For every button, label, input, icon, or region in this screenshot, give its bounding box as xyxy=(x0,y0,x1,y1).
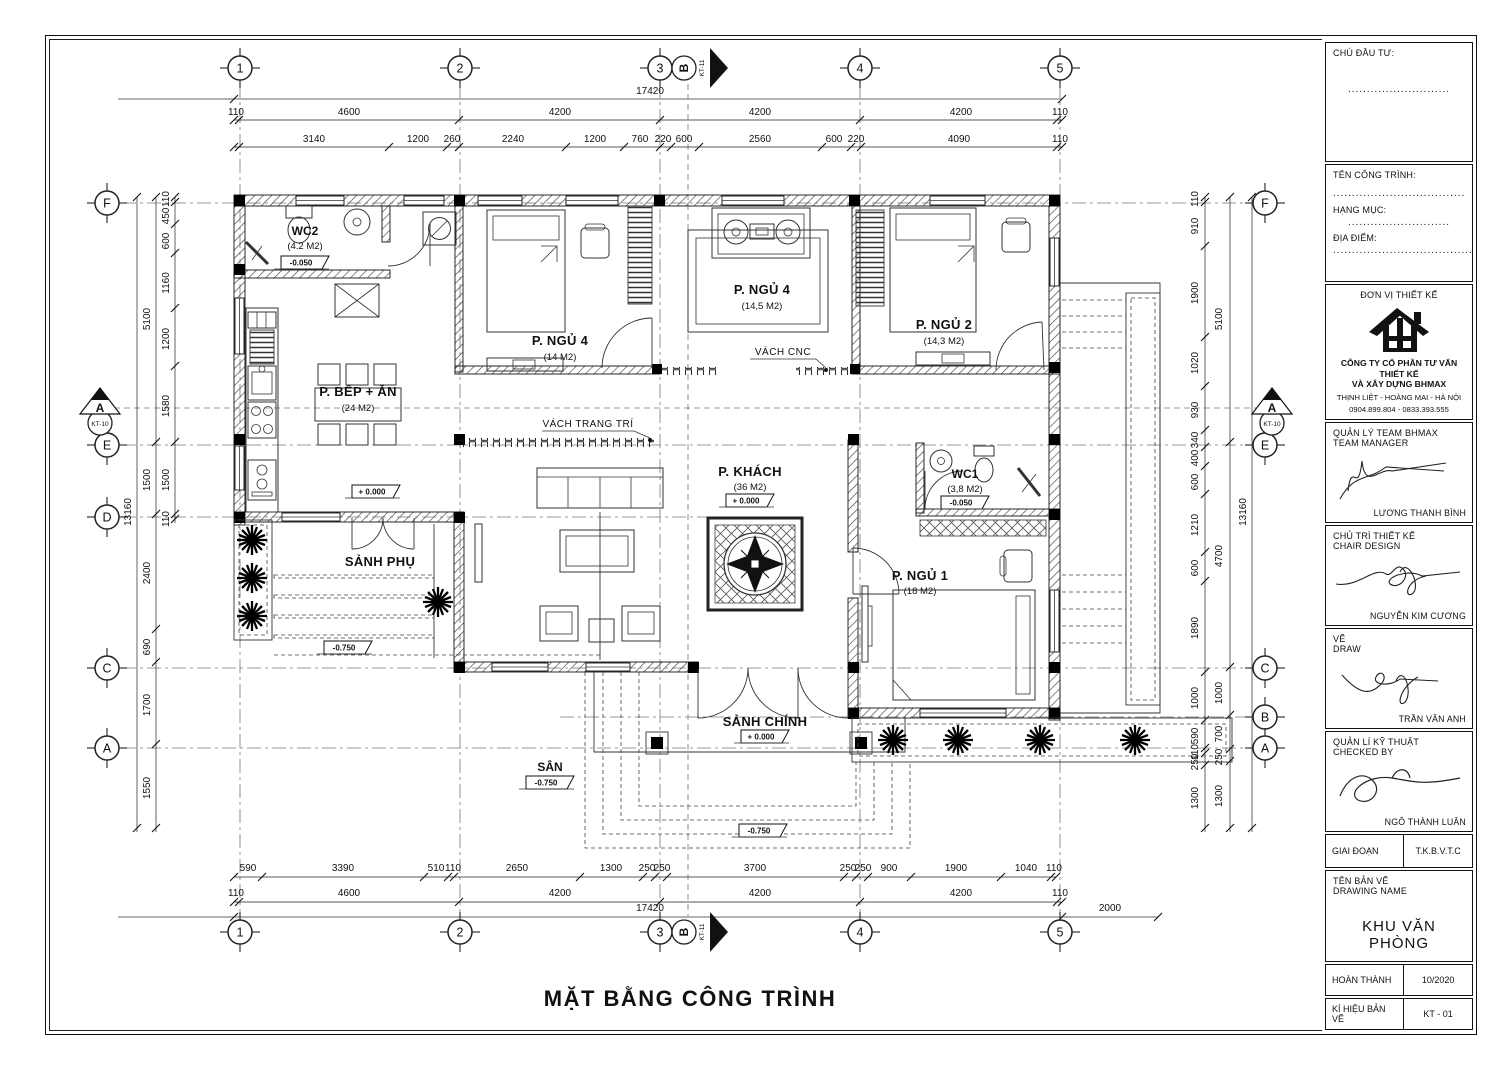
dim-text: 1300 xyxy=(600,863,623,874)
drawing-sheet: 17420 110 4600 4200 4200 4200 110 3140 1… xyxy=(0,0,1499,1071)
dim-text: 1040 xyxy=(1015,863,1038,874)
dim-text: 600 xyxy=(1190,473,1201,490)
stage-value: T.K.B.V.T.C xyxy=(1404,835,1472,867)
level-value: -0.050 xyxy=(950,499,973,508)
annotation-trang-tri: VÁCH TRANG TRÍ xyxy=(542,417,633,430)
level-value: -0.750 xyxy=(535,779,558,788)
dimension-lines xyxy=(118,95,1256,921)
role-box-manager: QUẢN LÝ TEAM BHMAX TEAM MANAGER LƯƠNG TH… xyxy=(1325,422,1473,523)
dim-text: 700 xyxy=(1214,725,1225,742)
room-area: (18 M2) xyxy=(904,586,937,597)
designer-box: ĐƠN VỊ THIẾT KẾ CÔNG TY CỔ PHẦN TƯ VẤN T… xyxy=(1325,284,1473,420)
dim-text: 4200 xyxy=(749,888,772,899)
company-address: THỊNH LIỆT - HOÀNG MAI - HÀ NỘI xyxy=(1333,393,1465,402)
grid-col-label: 2 xyxy=(457,62,464,76)
sheet-code-value: KT - 01 xyxy=(1404,999,1472,1029)
dim-text: 1020 xyxy=(1190,351,1201,374)
room-area: (24 M2) xyxy=(342,403,375,414)
dim-text: 110 xyxy=(1052,134,1068,145)
role-name: LƯƠNG THANH BÌNH xyxy=(1374,508,1466,518)
grid-col-label: 5 xyxy=(1057,926,1064,940)
signature xyxy=(1334,653,1454,709)
room-area: (14,3 M2) xyxy=(924,336,965,347)
dim-text: 13160 xyxy=(123,498,134,526)
dim-text: 4200 xyxy=(549,107,572,118)
room-name: P. NGỦ 2 xyxy=(916,317,972,332)
dim-text: 1300 xyxy=(1190,786,1201,809)
dim-text: 5100 xyxy=(142,307,153,330)
room-area: (4.2 M2) xyxy=(287,241,322,252)
drawing-name-box: TÊN BẢN VẼ DRAWING NAME KHU VĂN PHÒNG xyxy=(1325,870,1473,962)
dimension-texts: 17420 110 4600 4200 4200 4200 110 3140 1… xyxy=(123,86,1249,914)
signature xyxy=(1334,447,1454,503)
dim-text: 590 xyxy=(240,863,257,874)
completed-label: HOÀN THÀNH xyxy=(1326,965,1404,995)
dim-text: 910 xyxy=(1190,217,1201,234)
location-label: ĐỊA ĐIỂM: xyxy=(1333,233,1465,243)
section-sheet: KT-10 xyxy=(91,421,109,428)
role-label-vi: QUẢN LÍ KỸ THUẬT xyxy=(1333,737,1465,747)
grid-row-label: C xyxy=(102,662,111,676)
level-value: -0.750 xyxy=(333,644,356,653)
grid-col-label: 4 xyxy=(857,926,864,940)
porch-right-band xyxy=(852,718,1232,762)
dim-text: 590 xyxy=(1190,727,1201,744)
dim-text: 450 xyxy=(161,207,172,224)
grid-row-label: A xyxy=(1261,742,1270,756)
stage-box: GIAI ĐOẠN T.K.B.V.T.C xyxy=(1325,834,1473,868)
level-flags: -0.050 + 0.000 + 0.000 -0.050 -0.750 + 0… xyxy=(274,256,989,837)
design-unit-label: ĐƠN VỊ THIẾT KẾ xyxy=(1333,290,1465,300)
section-sheet: KT-11 xyxy=(699,59,706,76)
floor-plan: 17420 110 4600 4200 4200 4200 110 3140 1… xyxy=(0,0,1322,1071)
drawing-name-label-en: DRAWING NAME xyxy=(1333,886,1465,896)
dim-text: 250 xyxy=(855,863,872,874)
owner-box: CHÚ ĐẦU TƯ: ........................... xyxy=(1325,42,1473,162)
room-name: WC1 xyxy=(952,467,979,481)
dim-text: 600 xyxy=(161,232,172,249)
dim-text: 1200 xyxy=(161,327,172,350)
partition-cnc xyxy=(796,367,852,375)
company-phone: 0904.899.804 - 0833.393.555 xyxy=(1333,405,1465,414)
annotation-cnc: VÁCH CNC xyxy=(755,345,811,358)
annotations: VÁCH CNC VÁCH TRANG TRÍ xyxy=(542,345,828,442)
room-name: P. NGỦ 4 xyxy=(532,333,589,348)
dim-text: 220 xyxy=(655,134,672,145)
dim-text: 1500 xyxy=(161,468,172,491)
dim-text: 900 xyxy=(881,863,898,874)
dim-text: 600 xyxy=(1190,559,1201,576)
level-value: -0.050 xyxy=(290,259,313,268)
level-value: -0.750 xyxy=(748,827,771,836)
dim-text: 1500 xyxy=(142,468,153,491)
room-name: WC2 xyxy=(292,224,319,238)
dim-text: 1000 xyxy=(1214,681,1225,704)
dim-text: 1580 xyxy=(161,394,172,417)
company-name-line2: VÀ XÂY DỰNG BHMAX xyxy=(1333,379,1465,390)
partition-trang-tri xyxy=(458,438,654,447)
signature xyxy=(1334,550,1464,602)
dim-text: 110 xyxy=(161,191,172,207)
room-name: P. NGỦ 4 xyxy=(734,282,791,297)
role-box-draw: VẼ DRAW TRẦN VĂN ANH xyxy=(1325,628,1473,729)
section-marker-kt10-right: A KT-10 xyxy=(1252,388,1292,435)
grid-row-label: E xyxy=(103,439,111,453)
stage-label: GIAI ĐOẠN xyxy=(1326,835,1404,867)
title-block: CHÚ ĐẦU TƯ: ........................... … xyxy=(1322,39,1476,1031)
section-marker-kt11-bottom: B KT-11 xyxy=(672,912,728,952)
section-sheet: KT-11 xyxy=(699,923,706,940)
dim-text: 110 xyxy=(1190,191,1201,207)
role-label-vi: QUẢN LÝ TEAM BHMAX xyxy=(1333,428,1465,438)
section-marker-kt10-left: A KT-10 xyxy=(80,388,120,435)
dim-text: 110 xyxy=(1052,888,1068,899)
room-area: (36 M2) xyxy=(734,482,767,493)
dim-text: 400 xyxy=(1190,449,1201,466)
level-value: + 0.000 xyxy=(748,733,775,742)
dim-text: 1550 xyxy=(142,776,153,799)
dim-text: 1160 xyxy=(161,272,172,294)
project-name-label: TÊN CÔNG TRÌNH: xyxy=(1333,170,1465,180)
dim-text: 4200 xyxy=(549,888,572,899)
category-label: HẠNG MỤC: xyxy=(1333,205,1465,215)
section-sheet: KT-10 xyxy=(1263,421,1281,428)
dim-text: 3700 xyxy=(744,863,767,874)
room-name: SẢNH CHÍNH xyxy=(723,714,808,729)
project-name-dots: ................................... xyxy=(1333,188,1465,199)
room-labels: WC2 (4.2 M2) P. NGỦ 4 (14 M2) P. NGỦ 4 (… xyxy=(287,224,982,774)
porch-sanh-phu xyxy=(234,512,600,660)
dim-text: 2000 xyxy=(1099,903,1122,914)
dim-text: 4600 xyxy=(338,888,361,899)
drawing-name-label-vi: TÊN BẢN VẼ xyxy=(1333,876,1465,886)
room-name: P. BẾP + ĂN xyxy=(319,384,397,399)
dim-text: 4200 xyxy=(950,107,973,118)
room-area: (14,5 M2) xyxy=(742,301,783,312)
dim-text: 2650 xyxy=(506,863,529,874)
level-value: + 0.000 xyxy=(733,497,760,506)
grid-col-label: 1 xyxy=(237,62,244,76)
section-letter: B xyxy=(677,63,691,72)
door-leaf xyxy=(475,524,482,582)
section-letter: A xyxy=(1268,401,1277,415)
furniture-kitchen xyxy=(246,212,456,512)
dim-text: 1900 xyxy=(945,863,968,874)
dim-text: 1300 xyxy=(1214,784,1225,807)
sheet-code-label: KÍ HIỆU BẢN VẼ xyxy=(1326,999,1404,1029)
grid-row-label: A xyxy=(103,742,112,756)
dim-text: 4090 xyxy=(948,134,971,145)
completed-value: 10/2020 xyxy=(1404,965,1472,995)
role-box-checked-by: QUẢN LÍ KỸ THUẬT CHECKED BY NGÔ THÀNH LU… xyxy=(1325,731,1473,832)
dim-text: 5100 xyxy=(1214,307,1225,330)
grid-row-label: E xyxy=(1261,439,1269,453)
dim-text: 1890 xyxy=(1190,616,1201,639)
dim-text: 110 xyxy=(1046,863,1062,874)
dim-text: 3140 xyxy=(303,134,326,145)
dim-text: 340 xyxy=(1190,431,1201,448)
level-value: + 0.000 xyxy=(359,488,386,497)
dim-text: 1210 xyxy=(1190,513,1201,536)
room-name: P. KHÁCH xyxy=(718,464,782,479)
grid-col-label: 5 xyxy=(1057,62,1064,76)
drawing-title: MẶT BẰNG CÔNG TRÌNH xyxy=(544,986,836,1011)
company-logo-icon xyxy=(1367,304,1431,354)
dim-text: 930 xyxy=(1190,401,1201,418)
dim-text: 220 xyxy=(848,134,865,145)
role-label-vi: CHỦ TRÌ THIẾT KẾ xyxy=(1333,531,1465,541)
owner-label: CHÚ ĐẦU TƯ: xyxy=(1333,48,1465,58)
furniture-altar-room xyxy=(688,208,828,332)
completed-box: HOÀN THÀNH 10/2020 xyxy=(1325,964,1473,996)
grid-row-label: F xyxy=(103,197,111,211)
porch-sanh-chinh-yard xyxy=(585,672,910,848)
porch-right-side xyxy=(1060,283,1160,713)
grid-col-label: 4 xyxy=(857,62,864,76)
dim-text: 2560 xyxy=(749,134,772,145)
owner-dots: ........................... xyxy=(1333,84,1465,95)
grid-row-label: F xyxy=(1261,197,1269,211)
room-area: (3,8 M2) xyxy=(947,484,982,495)
sheet-code-box: KÍ HIỆU BẢN VẼ KT - 01 xyxy=(1325,998,1473,1030)
company-name-line1: CÔNG TY CỔ PHẦN TƯ VẤN THIẾT KẾ xyxy=(1333,358,1465,379)
dim-text: 4200 xyxy=(950,888,973,899)
room-name: SÂN xyxy=(537,759,562,774)
grid-row-label: B xyxy=(1261,711,1269,725)
dim-text: 3390 xyxy=(332,863,355,874)
dim-text: 600 xyxy=(826,134,843,145)
dim-text: 4600 xyxy=(338,107,361,118)
grid-col-label: 3 xyxy=(657,62,664,76)
dim-text: 1200 xyxy=(407,134,430,145)
dim-text: 250 xyxy=(654,863,671,874)
dim-text: 510 xyxy=(428,863,445,874)
section-marker-kt11-top: B KT-11 xyxy=(672,48,728,88)
dim-text: 1000 xyxy=(1190,686,1201,709)
dim-text: 760 xyxy=(632,134,649,145)
partition-cnc xyxy=(662,367,720,375)
location-dots: ....................................... xyxy=(1333,245,1465,256)
role-name: TRẦN VĂN ANH xyxy=(1399,714,1466,724)
dim-text: 1700 xyxy=(142,693,153,716)
grid-row-label: D xyxy=(102,511,111,525)
dim-text: 1200 xyxy=(584,134,607,145)
furniture-bed1 xyxy=(862,550,1035,700)
grid-row-label: C xyxy=(1260,662,1269,676)
dim-text: 260 xyxy=(444,134,461,145)
signature xyxy=(1334,756,1464,812)
dim-text: 110 xyxy=(1052,107,1068,118)
room-area: (14 M2) xyxy=(544,352,577,363)
section-letter: B xyxy=(677,927,691,936)
dim-text: 110 xyxy=(228,888,244,899)
project-box: TÊN CÔNG TRÌNH: ........................… xyxy=(1325,164,1473,282)
dim-text: 13160 xyxy=(1238,498,1249,526)
dim-text: 2400 xyxy=(142,561,153,584)
dim-text: 2240 xyxy=(502,134,525,145)
dim-text: 4200 xyxy=(749,107,772,118)
role-name: NGUYỄN KIM CƯƠNG xyxy=(1370,611,1466,621)
room-name: P. NGỦ 1 xyxy=(892,568,948,583)
grid-col-label: 3 xyxy=(657,926,664,940)
dim-text: 600 xyxy=(676,134,693,145)
grid-col-label: 1 xyxy=(237,926,244,940)
dim-text: 1900 xyxy=(1190,281,1201,304)
dim-text: 110 xyxy=(161,511,172,527)
dim-text: 4700 xyxy=(1214,544,1225,567)
drawing-name-value: KHU VĂN PHÒNG xyxy=(1333,918,1465,952)
role-label-vi: VẼ xyxy=(1333,634,1465,644)
category-dots: ........................... xyxy=(1333,217,1465,228)
dim-text: 110 xyxy=(445,863,461,874)
section-letter: A xyxy=(96,401,105,415)
room-name: SẢNH PHỤ xyxy=(345,554,415,569)
dim-text: 690 xyxy=(142,638,153,655)
role-name: NGÔ THÀNH LUÂN xyxy=(1385,817,1466,827)
dim-text: 250 xyxy=(1214,748,1225,765)
dim-text: 110 xyxy=(228,107,244,118)
grid-col-label: 2 xyxy=(457,926,464,940)
role-box-chair-design: CHỦ TRÌ THIẾT KẾ CHAIR DESIGN NGUYỄN KIM… xyxy=(1325,525,1473,626)
